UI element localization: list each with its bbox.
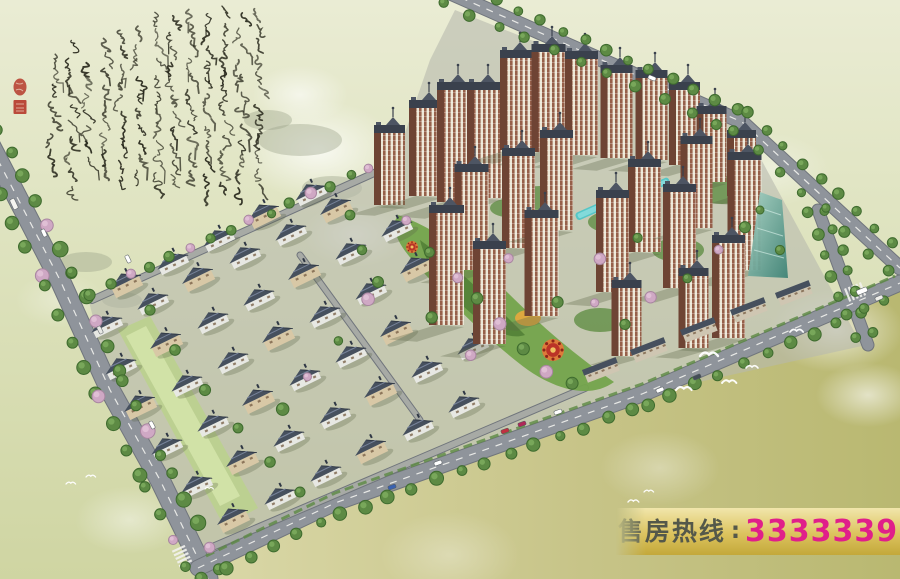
tower-roof <box>596 190 629 198</box>
tower-side-face <box>409 108 416 196</box>
tower-roof <box>697 106 727 114</box>
hotline-number: 3333339 <box>745 517 898 547</box>
tree <box>629 80 641 92</box>
tree <box>233 423 243 433</box>
tree <box>84 289 95 300</box>
tree <box>600 44 612 56</box>
tower-finial <box>392 107 395 110</box>
tree <box>820 251 828 259</box>
tree-highlight <box>604 413 609 418</box>
tree-highlight <box>132 402 137 407</box>
tree <box>155 509 166 520</box>
tree <box>887 238 897 248</box>
tower-side-face <box>532 52 539 152</box>
circular-plaza <box>542 339 564 361</box>
tower-floor-lines <box>608 73 633 158</box>
tree-highlight <box>832 319 836 323</box>
tower-side-face <box>601 73 608 158</box>
plaza-petal <box>558 342 561 345</box>
tree-highlight <box>146 306 151 311</box>
tower-finial <box>559 112 562 115</box>
tree <box>284 198 294 208</box>
tree <box>167 468 178 479</box>
tower-roof-box <box>431 202 436 205</box>
tree-highlight <box>560 29 564 33</box>
tree <box>133 468 147 482</box>
tree-highlight <box>467 351 472 356</box>
tree-highlight <box>41 281 46 286</box>
tree-highlight <box>365 165 369 169</box>
tree <box>687 108 697 118</box>
tree <box>754 145 764 155</box>
tree <box>131 400 141 410</box>
tree <box>603 411 615 423</box>
tree <box>29 195 41 207</box>
tower-finial <box>654 52 657 55</box>
circular-plaza <box>406 241 418 253</box>
tree-highlight <box>634 234 638 238</box>
tree <box>268 540 280 552</box>
tree-highlight <box>528 440 534 446</box>
tree <box>883 265 894 276</box>
tree <box>559 28 568 37</box>
tree <box>220 562 233 575</box>
seal-square <box>14 100 27 114</box>
tree <box>552 296 563 307</box>
tree <box>506 448 517 459</box>
tower-roof <box>663 184 696 192</box>
tower-roof <box>612 280 642 288</box>
tree <box>345 210 355 220</box>
tree-highlight <box>602 46 607 51</box>
tower-finial <box>696 250 699 253</box>
tree-highlight <box>42 221 48 227</box>
tree <box>106 279 116 289</box>
tree <box>246 551 258 563</box>
tree-highlight <box>715 246 719 250</box>
tree <box>535 15 545 25</box>
tower-roof-box <box>683 133 688 136</box>
tree-highlight <box>645 66 649 70</box>
sales-hotline-banner: 售房热线 : 3333339 <box>616 508 900 555</box>
tree-highlight <box>621 321 626 326</box>
tower-roof <box>540 130 573 138</box>
tower-finial <box>629 262 632 265</box>
tower-finial <box>474 146 477 149</box>
tree <box>852 206 862 216</box>
tree <box>838 245 848 255</box>
tree <box>808 328 821 341</box>
tree <box>333 507 346 520</box>
tree <box>660 93 671 104</box>
tree-highlight <box>853 208 857 212</box>
tree <box>145 305 155 315</box>
blossom-tree <box>364 164 373 173</box>
tree-highlight <box>827 272 832 277</box>
tree-highlight <box>553 298 558 303</box>
tree-highlight <box>551 46 555 50</box>
tree <box>527 438 540 451</box>
tree <box>359 500 373 514</box>
blossom-tree <box>204 542 215 553</box>
tree <box>822 204 830 212</box>
tree-highlight <box>358 246 362 250</box>
blossom-tree <box>362 293 375 306</box>
tree-highlight <box>664 390 670 396</box>
tree-highlight <box>839 246 844 251</box>
tower-roof-box <box>681 265 686 268</box>
plaza-petal <box>416 246 418 248</box>
tree <box>425 247 435 257</box>
tree-highlight <box>829 226 833 230</box>
tree <box>514 7 523 16</box>
tree <box>325 182 335 192</box>
tree <box>802 207 813 218</box>
tree <box>633 233 642 242</box>
tree-highlight <box>777 247 781 251</box>
tree <box>267 210 275 218</box>
tree <box>121 445 132 456</box>
tower-roof-box <box>699 103 704 106</box>
seal-oval <box>14 79 27 96</box>
tree-highlight <box>141 483 146 488</box>
tree-highlight <box>168 469 173 474</box>
hotline-label: 售房热线 <box>618 519 726 544</box>
tower-roof <box>437 82 472 90</box>
tower-side-face <box>437 90 444 202</box>
tower-roof <box>628 159 661 167</box>
tree-highlight <box>431 473 437 479</box>
tree <box>739 222 750 233</box>
plaza-petal <box>558 355 561 358</box>
tree-highlight <box>94 392 100 398</box>
tree-highlight <box>885 267 890 272</box>
tower-roof-box <box>469 79 474 82</box>
blossom-tree <box>305 187 316 198</box>
tree-highlight <box>557 432 561 436</box>
tower-side-face <box>500 58 507 150</box>
tree <box>39 280 50 291</box>
tree <box>5 216 18 229</box>
tower-roof-box <box>534 41 539 44</box>
tree <box>295 487 305 497</box>
tree-highlight <box>628 405 634 411</box>
tree <box>116 375 128 387</box>
tree-highlight <box>714 372 719 377</box>
tree-highlight <box>713 121 718 126</box>
plaza-petal <box>551 339 554 342</box>
tree <box>457 466 467 476</box>
tree <box>813 229 825 241</box>
tree-highlight <box>473 294 478 299</box>
tree <box>711 119 721 129</box>
tree-highlight <box>326 183 331 188</box>
tree-highlight <box>871 225 875 229</box>
tree-highlight <box>269 542 274 547</box>
tree <box>549 45 559 55</box>
tower-roof-box <box>411 97 416 100</box>
tree <box>577 57 586 66</box>
tree <box>190 515 205 530</box>
tree-highlight <box>810 329 816 335</box>
tree <box>626 403 639 416</box>
tree-highlight <box>107 280 112 285</box>
blossom-tree <box>169 535 178 544</box>
tree-highlight <box>8 148 13 153</box>
tree-highlight <box>374 278 379 283</box>
blossom-tree <box>402 216 411 225</box>
plaza-petal <box>408 243 410 245</box>
plaza-petal <box>415 250 417 252</box>
tree-highlight <box>157 452 162 457</box>
tree <box>581 35 591 45</box>
tree-highlight <box>643 401 649 407</box>
tree-highlight <box>407 485 412 490</box>
tower-side-face <box>596 198 603 292</box>
blossom-tree <box>494 318 506 330</box>
tree <box>834 292 843 301</box>
blossom-tree <box>714 245 723 254</box>
tree-highlight <box>864 250 869 255</box>
tree <box>843 266 852 275</box>
tree <box>785 336 797 348</box>
tower-floor-lines <box>381 133 405 205</box>
tree-highlight <box>306 189 311 194</box>
tree-highlight <box>278 404 284 410</box>
tree <box>170 345 181 356</box>
tree <box>775 245 784 254</box>
tree-highlight <box>689 85 694 90</box>
blossom-tree <box>453 273 463 283</box>
tree <box>709 94 720 105</box>
tree-highlight <box>757 207 761 211</box>
tree-highlight <box>426 249 430 253</box>
plaza-petal <box>411 241 413 243</box>
tree <box>728 126 738 136</box>
tree <box>602 68 611 77</box>
tower-roof <box>374 125 405 133</box>
tree-highlight <box>755 146 759 150</box>
tower-side-face <box>663 192 670 288</box>
tree-highlight <box>684 275 688 279</box>
tree-highlight <box>266 458 271 463</box>
tree <box>380 490 394 504</box>
blossom-tree <box>465 350 476 361</box>
tree <box>841 309 852 320</box>
tree-highlight <box>268 211 272 215</box>
tower-roof-box <box>457 161 462 164</box>
tree-highlight <box>360 502 366 508</box>
blossom-tree <box>92 390 105 403</box>
tower-finial <box>449 187 452 190</box>
tree <box>290 528 301 539</box>
tree <box>176 492 191 507</box>
tree <box>478 458 490 470</box>
tree-highlight <box>292 530 297 535</box>
tree-highlight <box>730 127 734 131</box>
tree-highlight <box>603 70 607 74</box>
tree-highlight <box>118 376 123 381</box>
tree <box>164 251 174 261</box>
tree-highlight <box>578 58 582 62</box>
tree-highlight <box>156 510 161 515</box>
tree-highlight <box>536 16 541 21</box>
tree <box>181 562 191 572</box>
tree-highlight <box>515 8 519 12</box>
tree <box>839 226 850 237</box>
tree <box>463 10 475 22</box>
tower-finial <box>682 166 685 169</box>
tower-roof-box <box>502 47 507 50</box>
tower-roof-box <box>603 62 608 65</box>
tower-roof-box <box>630 156 635 159</box>
tower-finial <box>714 88 717 91</box>
tree-highlight <box>30 196 36 202</box>
tower-roof <box>712 235 745 243</box>
tree <box>317 518 326 527</box>
tree <box>762 126 772 136</box>
tree-highlight <box>115 366 121 372</box>
tree-highlight <box>852 287 857 292</box>
tower-roof <box>467 82 502 90</box>
tree-highlight <box>780 143 784 147</box>
tower-roof-box <box>527 207 532 210</box>
tree <box>712 371 722 381</box>
tree <box>624 56 633 65</box>
tree-highlight <box>869 329 873 333</box>
tree-highlight <box>108 418 114 424</box>
tree-highlight <box>427 313 432 318</box>
tree <box>868 328 878 338</box>
tree <box>643 64 653 74</box>
tower-roof-box <box>376 122 381 125</box>
tower-finial <box>457 64 460 67</box>
tree-highlight <box>382 492 388 498</box>
tree <box>426 312 437 323</box>
tree-highlight <box>661 95 666 100</box>
blossom-tree <box>591 299 599 307</box>
tree-highlight <box>741 223 746 228</box>
tree-highlight <box>68 339 73 344</box>
tree-highlight <box>458 467 462 471</box>
tree-highlight <box>171 346 176 351</box>
plaza-petal <box>560 348 563 351</box>
tree-highlight <box>840 228 845 233</box>
tower-finial <box>619 47 622 50</box>
tower-roof-box <box>542 127 547 130</box>
tree <box>430 471 444 485</box>
tree-highlight <box>142 426 149 433</box>
tree-highlight <box>215 565 220 570</box>
tree-highlight <box>798 190 802 194</box>
tree <box>742 106 753 117</box>
tower-roof <box>473 241 506 249</box>
tree <box>828 225 837 234</box>
tree <box>155 450 165 460</box>
tree-highlight <box>234 424 238 428</box>
tree-highlight <box>127 270 131 274</box>
tree <box>566 377 578 389</box>
tree-highlight <box>403 217 407 221</box>
tree-highlight <box>568 379 573 384</box>
tree-highlight <box>689 109 694 114</box>
tree <box>439 0 448 7</box>
plaza-petal <box>406 246 408 248</box>
tree-highlight <box>245 216 249 220</box>
tree <box>668 73 679 84</box>
tree <box>779 142 787 150</box>
tree-highlight <box>91 317 97 323</box>
tree-highlight <box>631 82 636 87</box>
tree-highlight <box>187 245 191 249</box>
aerial-rendering: 售房热线 : 3333339 <box>0 0 900 579</box>
tower-floor-lines <box>436 213 464 325</box>
tree <box>763 348 773 358</box>
tree <box>52 241 68 257</box>
tree <box>265 457 276 468</box>
tree-highlight <box>835 293 839 297</box>
tower-roof <box>500 50 533 58</box>
tree <box>16 169 30 183</box>
tower-roof-box <box>504 145 509 148</box>
tree <box>870 224 879 233</box>
tower-roof-box <box>714 232 719 235</box>
tower-roof <box>525 210 559 218</box>
tower-finial <box>647 141 650 144</box>
tree-highlight <box>743 108 748 113</box>
tree-highlight <box>296 488 301 493</box>
tower-floor-lines <box>643 78 668 160</box>
tree <box>276 403 289 416</box>
tower-finial <box>615 172 618 175</box>
tree <box>831 318 841 328</box>
tree-highlight <box>507 450 512 455</box>
blossom-tree <box>244 215 254 225</box>
mist-patch <box>600 431 720 505</box>
plaza-petal <box>542 348 545 351</box>
tree <box>833 188 845 200</box>
tree-highlight <box>734 105 739 110</box>
tower-roof <box>679 268 709 276</box>
tower-roof <box>455 164 489 172</box>
tower-side-face <box>612 288 619 356</box>
tree-highlight <box>860 305 864 309</box>
tree <box>7 147 18 158</box>
tree <box>859 304 869 314</box>
tree <box>199 384 210 395</box>
tree-highlight <box>335 338 339 342</box>
tree-highlight <box>304 374 308 378</box>
blossom-tree <box>90 315 102 327</box>
tree-highlight <box>804 208 809 213</box>
tower-floor-lines <box>719 243 745 338</box>
tree <box>797 189 805 197</box>
tower-floor-lines <box>507 58 533 150</box>
tree-highlight <box>201 386 206 391</box>
tree <box>226 225 236 235</box>
tree-highlight <box>777 169 781 173</box>
plaza-petal <box>408 250 410 252</box>
tower-roof-box <box>567 48 572 51</box>
tree-highlight <box>53 311 58 316</box>
tree-highlight <box>818 175 823 180</box>
tower-side-face <box>502 156 509 248</box>
tree-highlight <box>37 270 43 276</box>
tree <box>144 262 154 272</box>
tree <box>517 343 529 355</box>
tree-highlight <box>814 230 819 235</box>
plaza-petal <box>545 355 548 358</box>
